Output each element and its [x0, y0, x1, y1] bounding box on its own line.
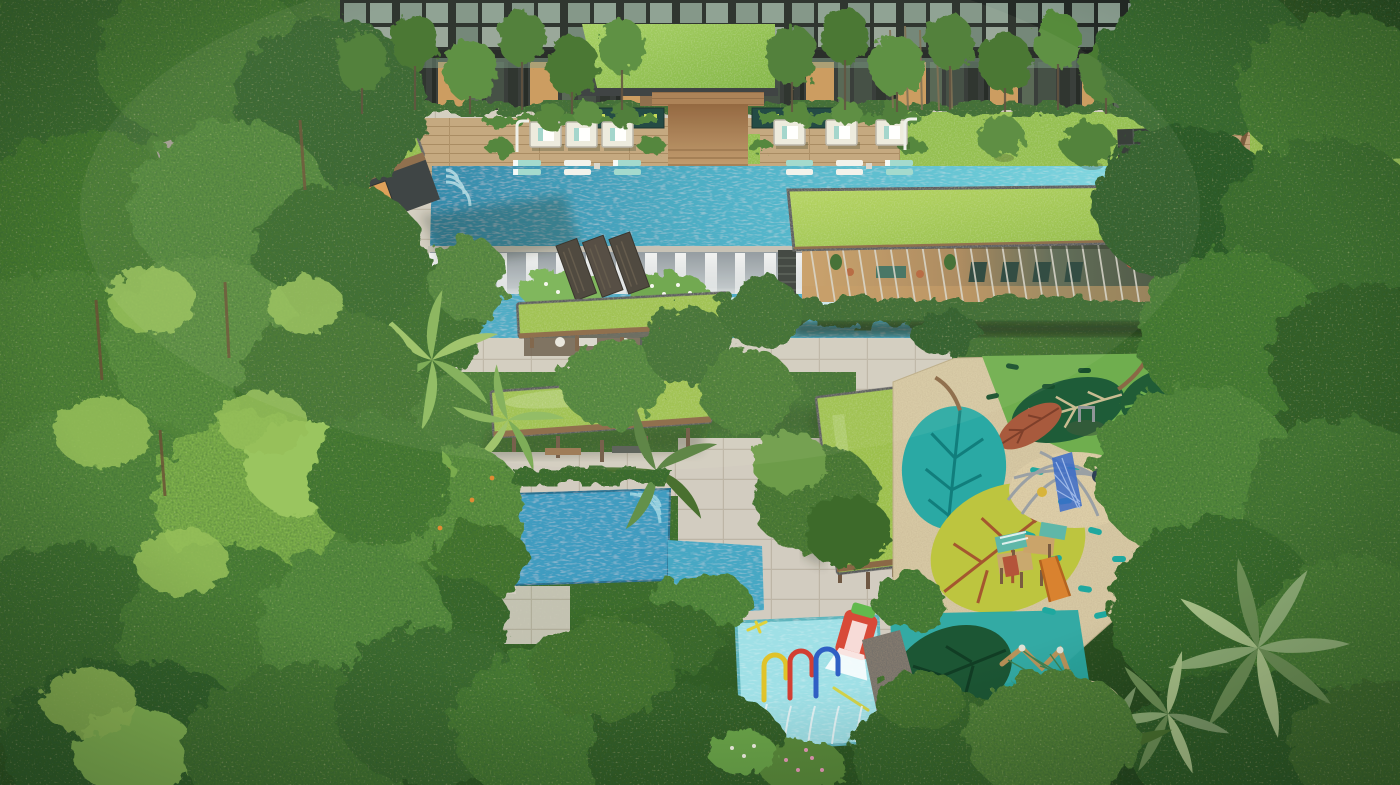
scene-aerial-render: [0, 0, 1400, 785]
aerial-render-stage: [0, 0, 1400, 785]
